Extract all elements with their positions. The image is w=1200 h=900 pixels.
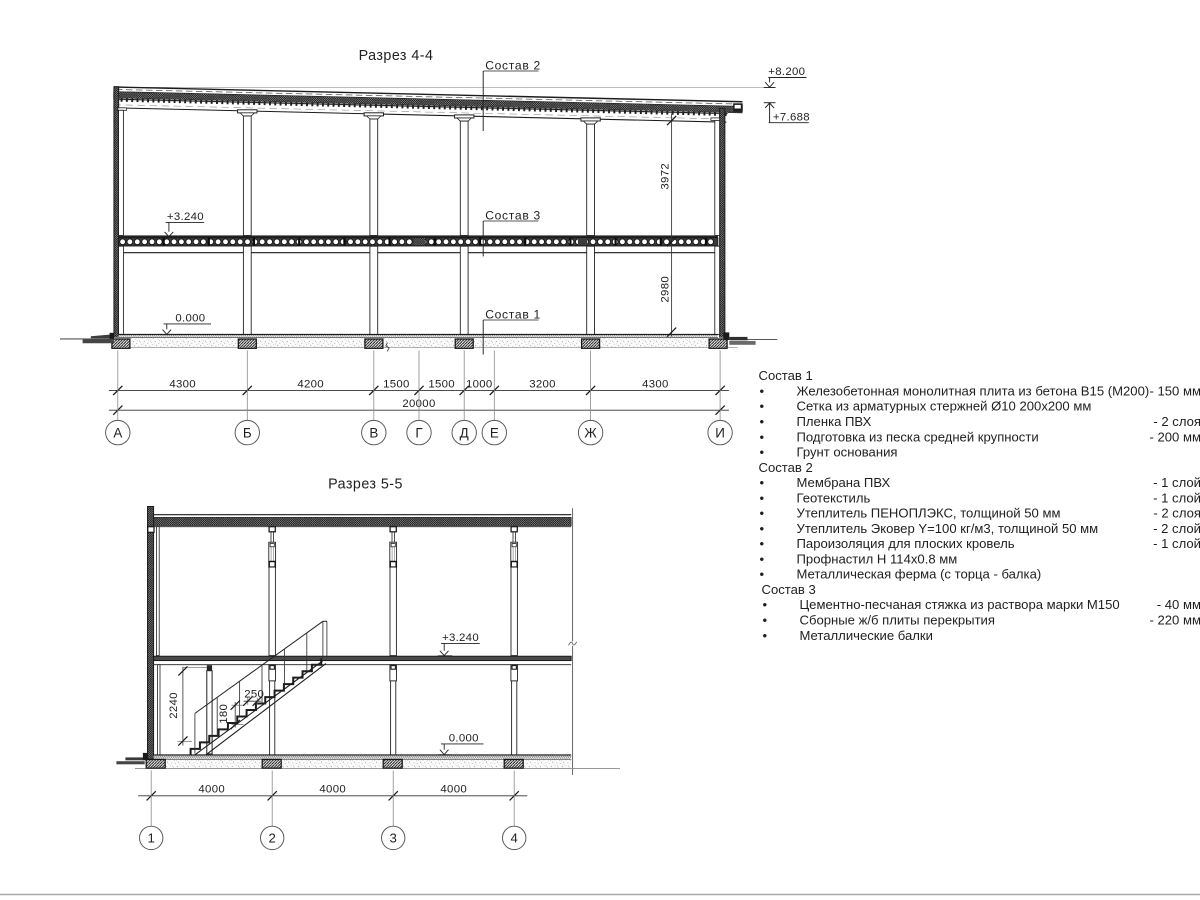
svg-text:•: • — [760, 551, 765, 566]
svg-text:•: • — [760, 506, 765, 521]
svg-text:•: • — [760, 429, 765, 444]
svg-text:2: 2 — [269, 831, 276, 846]
svg-text:•: • — [763, 628, 768, 643]
svg-text:И: И — [715, 425, 725, 440]
svg-text:Цементно-песчаная стяжка из ра: Цементно-песчаная стяжка из раствора мар… — [800, 597, 1120, 612]
svg-text:0.000: 0.000 — [175, 313, 205, 325]
svg-text:2980: 2980 — [660, 276, 672, 303]
svg-text:•: • — [760, 399, 765, 414]
svg-text:Ж: Ж — [584, 425, 597, 440]
svg-text:+3.240: +3.240 — [167, 211, 204, 223]
svg-text:Б: Б — [243, 425, 252, 440]
svg-text:4000: 4000 — [440, 784, 467, 796]
svg-text:Железобетонная монолитная плит: Железобетонная монолитная плита из бетон… — [797, 384, 1150, 399]
svg-text:Профнастил Н 114х0.8 мм: Профнастил Н 114х0.8 мм — [797, 551, 958, 566]
svg-text:- 2 слой: - 2 слой — [1153, 521, 1200, 536]
svg-text:Мембрана ПВХ: Мембрана ПВХ — [797, 475, 891, 490]
svg-text:Металлическая ферма (с торца -: Металлическая ферма (с торца - балка) — [797, 567, 1042, 582]
svg-text:1000: 1000 — [466, 378, 493, 390]
svg-text:•: • — [760, 567, 765, 582]
svg-text:Состав 2: Состав 2 — [485, 58, 541, 72]
svg-text:Утеплитель ПЕНОПЛЭКС, толщиной: Утеплитель ПЕНОПЛЭКС, толщиной 50 мм — [797, 506, 1061, 521]
svg-text:+7.688: +7.688 — [773, 112, 810, 124]
svg-text:0.000: 0.000 — [449, 732, 479, 744]
svg-text:Металлические балки: Металлические балки — [800, 628, 933, 643]
svg-text:Состав 1: Состав 1 — [759, 368, 813, 383]
svg-text:4000: 4000 — [198, 784, 225, 796]
svg-text:•: • — [760, 445, 765, 460]
svg-text:2240: 2240 — [168, 692, 180, 719]
svg-text:Состав 2: Состав 2 — [759, 460, 813, 475]
svg-text:•: • — [760, 490, 765, 505]
svg-text:+3.240: +3.240 — [442, 632, 479, 644]
svg-text:1: 1 — [148, 831, 155, 846]
svg-text:250: 250 — [244, 688, 264, 700]
svg-text:Состав 3: Состав 3 — [485, 208, 541, 222]
svg-text:- 200 мм: - 200 мм — [1150, 429, 1200, 444]
svg-text:•: • — [760, 384, 765, 399]
svg-text:- 220 мм: - 220 мм — [1150, 613, 1200, 628]
svg-text:Г: Г — [415, 425, 422, 440]
svg-text:1500: 1500 — [383, 378, 410, 390]
svg-text:- 40 мм: - 40 мм — [1157, 597, 1200, 612]
svg-text:3972: 3972 — [660, 163, 672, 190]
svg-text:+8.200: +8.200 — [768, 66, 805, 78]
svg-text:1500: 1500 — [428, 378, 455, 390]
svg-text:- 1 слой: - 1 слой — [1153, 475, 1200, 490]
svg-text:А: А — [113, 425, 122, 440]
svg-text:Пароизоляция для плоских крове: Пароизоляция для плоских кровель — [797, 536, 1015, 551]
svg-text:4200: 4200 — [297, 378, 324, 390]
svg-text:Геотекстиль: Геотекстиль — [797, 490, 871, 505]
svg-text:•: • — [760, 475, 765, 490]
svg-text:3200: 3200 — [529, 378, 556, 390]
svg-text:3: 3 — [390, 831, 397, 846]
svg-text:4300: 4300 — [642, 378, 669, 390]
svg-text:- 2 слоя: - 2 слоя — [1153, 506, 1200, 521]
svg-text:180: 180 — [218, 704, 230, 724]
svg-text:4: 4 — [511, 831, 518, 846]
svg-text:Сетка из арматурных стержней Ø: Сетка из арматурных стержней Ø10 200х200… — [797, 399, 1092, 414]
svg-text:- 1 слой: - 1 слой — [1153, 490, 1200, 505]
svg-text:Е: Е — [490, 425, 499, 440]
svg-text:4000: 4000 — [319, 784, 346, 796]
svg-text:В: В — [369, 425, 378, 440]
svg-text:Сборные ж/б плиты перекрытия: Сборные ж/б плиты перекрытия — [800, 613, 995, 628]
svg-text:4300: 4300 — [169, 378, 196, 390]
svg-text:Разрез 4-4: Разрез 4-4 — [359, 48, 434, 64]
svg-text:•: • — [763, 597, 768, 612]
svg-text:Утеплитель Эковер Y=100 кг/м3,: Утеплитель Эковер Y=100 кг/м3, толщиной … — [797, 521, 1099, 536]
svg-text:- 150 мм: - 150 мм — [1150, 384, 1200, 399]
svg-text:•: • — [760, 521, 765, 536]
svg-text:Разрез 5-5: Разрез 5-5 — [328, 477, 403, 493]
svg-text:Грунт основания: Грунт основания — [797, 445, 898, 460]
svg-text:Пленка ПВХ: Пленка ПВХ — [797, 414, 872, 429]
svg-text:Д: Д — [460, 425, 469, 440]
svg-text:•: • — [760, 536, 765, 551]
svg-text:Состав 3: Состав 3 — [762, 582, 816, 597]
svg-text:•: • — [760, 414, 765, 429]
svg-text:•: • — [763, 613, 768, 628]
svg-text:Подготовка из песка средней кр: Подготовка из песка средней крупности — [797, 429, 1039, 444]
svg-text:- 2 слоя: - 2 слоя — [1153, 414, 1200, 429]
svg-text:- 1 слой: - 1 слой — [1153, 536, 1200, 551]
svg-text:Состав 1: Состав 1 — [485, 307, 541, 321]
